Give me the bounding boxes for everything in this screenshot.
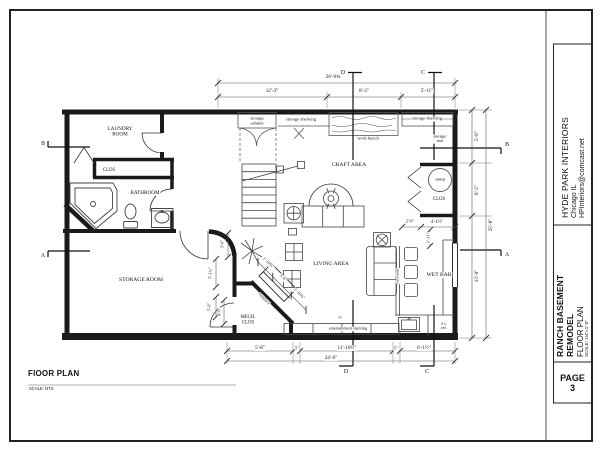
title-block-company: HYDE PARK INTERIORS Chicago IL HPInterio… bbox=[553, 44, 592, 225]
section-line-d-top bbox=[348, 73, 362, 161]
craft-desk bbox=[309, 184, 353, 206]
company-name: HYDE PARK INTERIORS bbox=[560, 52, 570, 218]
floor-plan-drawing bbox=[0, 0, 600, 450]
page-label: PAGE bbox=[560, 373, 585, 383]
storage-door-bottom bbox=[210, 303, 234, 327]
sump-pit bbox=[429, 169, 452, 192]
stair-post bbox=[277, 166, 284, 173]
page-number: 3 bbox=[570, 383, 575, 393]
craft-furniture bbox=[284, 184, 364, 235]
sheet-border bbox=[10, 10, 592, 441]
drawing-sheet: LAUNDRY ROOMCLOSBATHROOMSTORAGE ROOMMECH… bbox=[0, 0, 600, 450]
dimension-ticks bbox=[213, 80, 489, 364]
bar-stool bbox=[405, 248, 418, 261]
drawing-title: FlOOR PLAN bbox=[28, 369, 79, 378]
doors bbox=[142, 133, 421, 327]
company-city: Chicago IL bbox=[571, 52, 578, 218]
stairs bbox=[242, 162, 305, 227]
corner-tub bbox=[70, 183, 117, 229]
exterior-walls bbox=[62, 110, 458, 340]
wet-bar-fixtures bbox=[396, 240, 455, 336]
sheet-scale: SCALE: 1/4"=1'-0" bbox=[585, 262, 590, 357]
curved-wall bbox=[209, 232, 235, 257]
entertainment-shelving bbox=[284, 324, 399, 335]
laundry-door bbox=[142, 133, 162, 153]
bathroom-door bbox=[150, 189, 172, 211]
company-email: HPInteriors@comcast.net bbox=[579, 52, 586, 218]
living-furniture bbox=[241, 233, 399, 335]
section-line-b-right bbox=[420, 148, 501, 154]
bar-stool bbox=[405, 284, 418, 297]
project-title: RANCH BASEMENT REMODEL bbox=[555, 231, 575, 357]
sump-bifold-doors bbox=[408, 167, 421, 212]
sheet-title: FLOOR PLAN bbox=[576, 231, 585, 357]
drawing-scale: SCALE: NTS bbox=[29, 387, 54, 391]
stair-post bbox=[298, 162, 305, 169]
sump-closet-walls bbox=[420, 165, 457, 216]
window bbox=[453, 243, 458, 287]
laundry-chevron bbox=[74, 148, 94, 164]
sofa bbox=[367, 247, 397, 296]
section-line-c-top bbox=[428, 73, 442, 161]
interior-walls bbox=[63, 110, 457, 339]
bar-stool bbox=[405, 266, 418, 279]
title-block-page: PAGE 3 bbox=[553, 362, 592, 403]
title-block-project: RANCH BASEMENT REMODEL FLOOR PLAN SCALE:… bbox=[553, 225, 592, 362]
section-lines bbox=[48, 73, 501, 367]
storage-cabinet bbox=[238, 113, 276, 129]
extension-lines bbox=[218, 78, 492, 364]
storage-door-top bbox=[180, 231, 208, 259]
toilet bbox=[125, 204, 136, 219]
plant bbox=[241, 238, 263, 264]
section-line-a-right bbox=[460, 250, 501, 256]
